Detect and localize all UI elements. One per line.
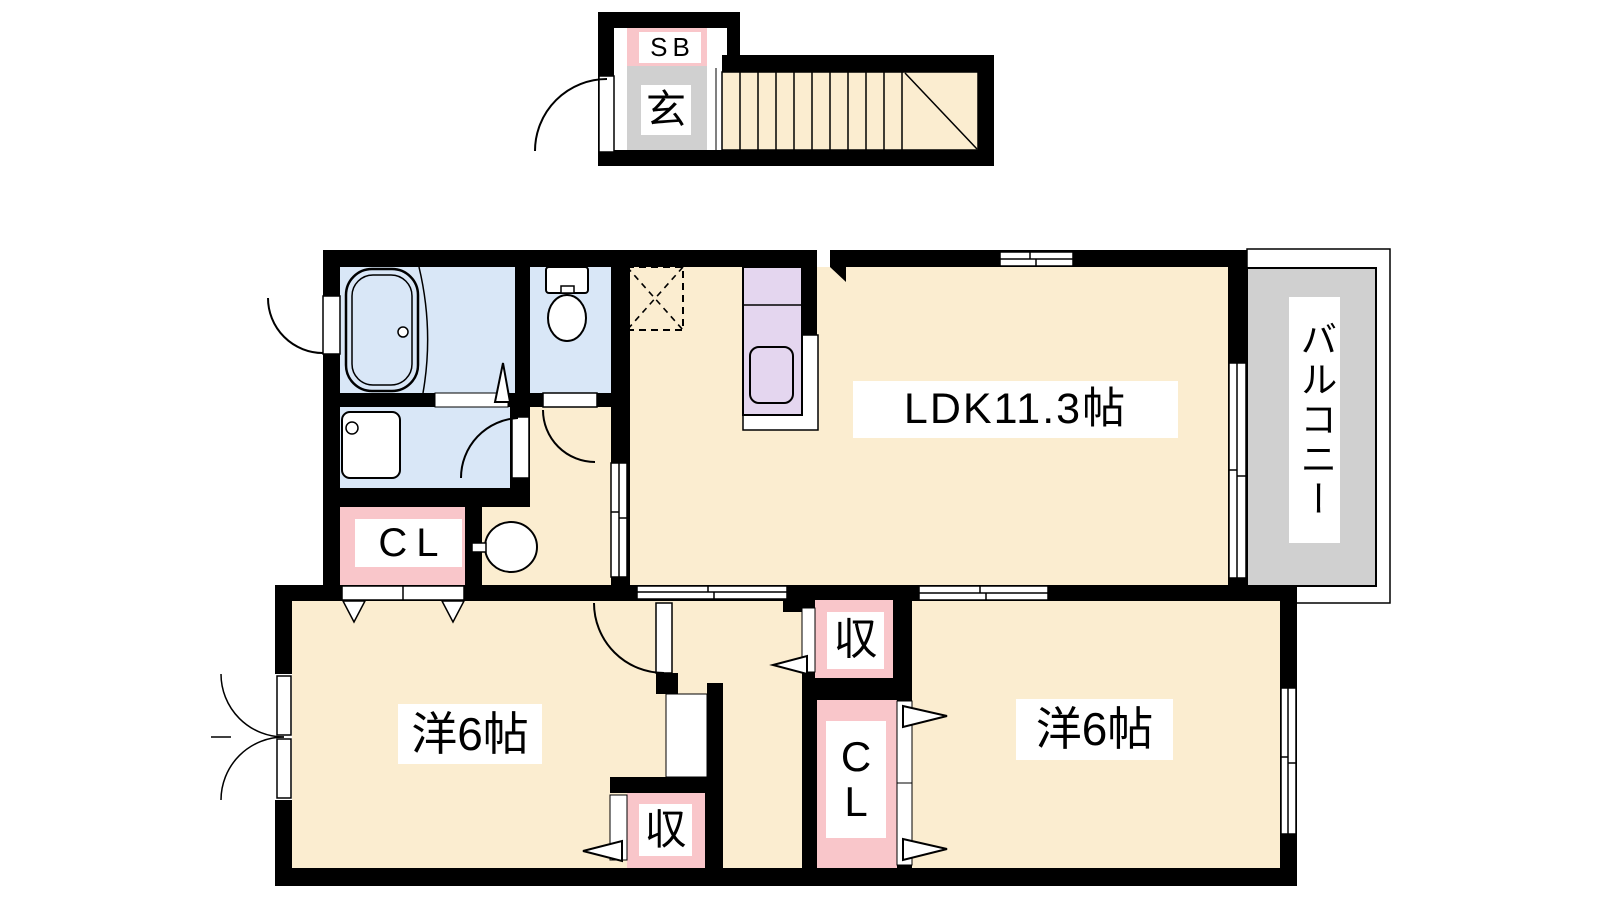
storage-south-label: 収 bbox=[639, 804, 692, 856]
bedroom-east-slider-icon bbox=[919, 586, 1048, 600]
toilet-icon bbox=[546, 267, 588, 341]
bedroom-east-window-icon bbox=[1281, 688, 1296, 834]
staircase bbox=[722, 72, 978, 150]
bathroom-side-door-icon bbox=[268, 296, 340, 354]
kitchen-sink-icon bbox=[750, 347, 793, 403]
entrance-stair-block bbox=[535, 12, 994, 166]
wall-notch-kitchen bbox=[817, 250, 830, 267]
pipe-space bbox=[666, 694, 707, 777]
wall-notch bbox=[718, 28, 727, 55]
floor-plan: SB 玄 LDK11.3帖 バルコニー CL 洋6帖 洋6帖 収 収 C L bbox=[0, 0, 1600, 900]
washstand-icon bbox=[342, 412, 400, 478]
balcony-label: バルコニー bbox=[1289, 297, 1340, 543]
ldk-label: LDK11.3帖 bbox=[853, 381, 1178, 438]
balcony-sliding-window-icon bbox=[1229, 363, 1246, 578]
hall-ldk-slider-icon bbox=[611, 463, 627, 577]
entrance-label: 玄 bbox=[641, 85, 691, 135]
entrance-door-icon bbox=[535, 76, 614, 152]
bedroom-west-label: 洋6帖 bbox=[398, 704, 542, 764]
floor-plan-drawing bbox=[0, 0, 1600, 900]
bedroom-west-casement-window-icon bbox=[211, 674, 292, 800]
bedroom-east-label: 洋6帖 bbox=[1016, 699, 1173, 760]
hallway-floor bbox=[530, 407, 611, 585]
bedroom-west-slider-icon bbox=[637, 586, 787, 599]
storage-mid-label: 収 bbox=[827, 612, 884, 669]
closet-east-label: C L bbox=[826, 721, 886, 838]
ldk-top-window-icon bbox=[1000, 252, 1073, 266]
closet-hall-label: CL bbox=[355, 519, 462, 567]
shoe-box-label: SB bbox=[639, 32, 701, 63]
